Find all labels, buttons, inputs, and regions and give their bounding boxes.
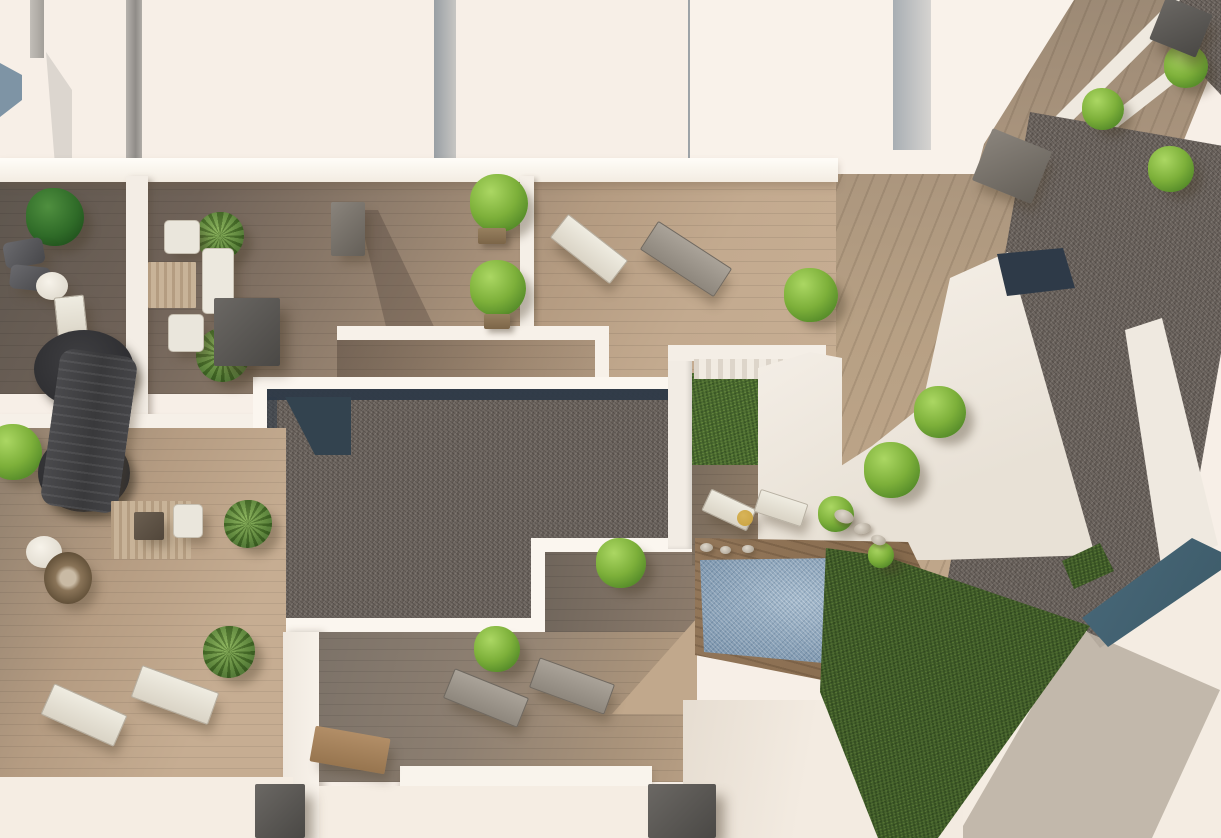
potted-tree-center-2: [470, 260, 526, 316]
tree-tilted-terrace-low: [864, 442, 920, 498]
bush-below-gravel-2: [474, 626, 520, 672]
lounger-white: [41, 683, 128, 747]
palm-lower-left-2: [224, 500, 272, 548]
lounger-white: [754, 489, 809, 527]
tree-tilted-terrace-top: [784, 268, 838, 322]
rooftop-render: [0, 0, 1221, 838]
table-dark: [134, 512, 164, 540]
lounger-white: [550, 214, 628, 284]
lounger-gray: [640, 221, 732, 297]
palm-lower-left: [203, 626, 255, 678]
box-dark: [1149, 0, 1213, 58]
chimney: [972, 128, 1052, 204]
bush-left-edge: [0, 424, 42, 480]
armchair-white: [168, 314, 204, 352]
pot: [484, 314, 510, 329]
tuft-pool-corner: [868, 542, 894, 568]
scene-objects-layer: [0, 0, 1221, 838]
bench: [309, 726, 390, 775]
stone: [720, 546, 731, 554]
box-dark: [648, 784, 716, 838]
lounger-gray: [443, 668, 529, 728]
armchair-white: [173, 504, 203, 538]
lounger-white: [131, 665, 220, 725]
stone: [742, 545, 754, 553]
wicker: [44, 552, 92, 604]
table-yellow: [737, 510, 753, 526]
bush-right-wing-2: [1148, 146, 1194, 192]
potted-tree-center-1: [470, 174, 528, 232]
chimney: [331, 202, 365, 256]
bush-below-gravel-1: [596, 538, 646, 588]
box-dark: [255, 784, 305, 838]
box-dark: [214, 298, 280, 366]
tree-tilted-terrace-mid: [914, 386, 966, 438]
stone: [853, 522, 872, 536]
bush-right-wing-1: [1082, 88, 1124, 130]
lounger-gray: [529, 657, 615, 714]
stone: [700, 543, 713, 552]
armchair-white: [164, 220, 200, 254]
rug: [148, 262, 196, 308]
pot: [478, 228, 506, 244]
